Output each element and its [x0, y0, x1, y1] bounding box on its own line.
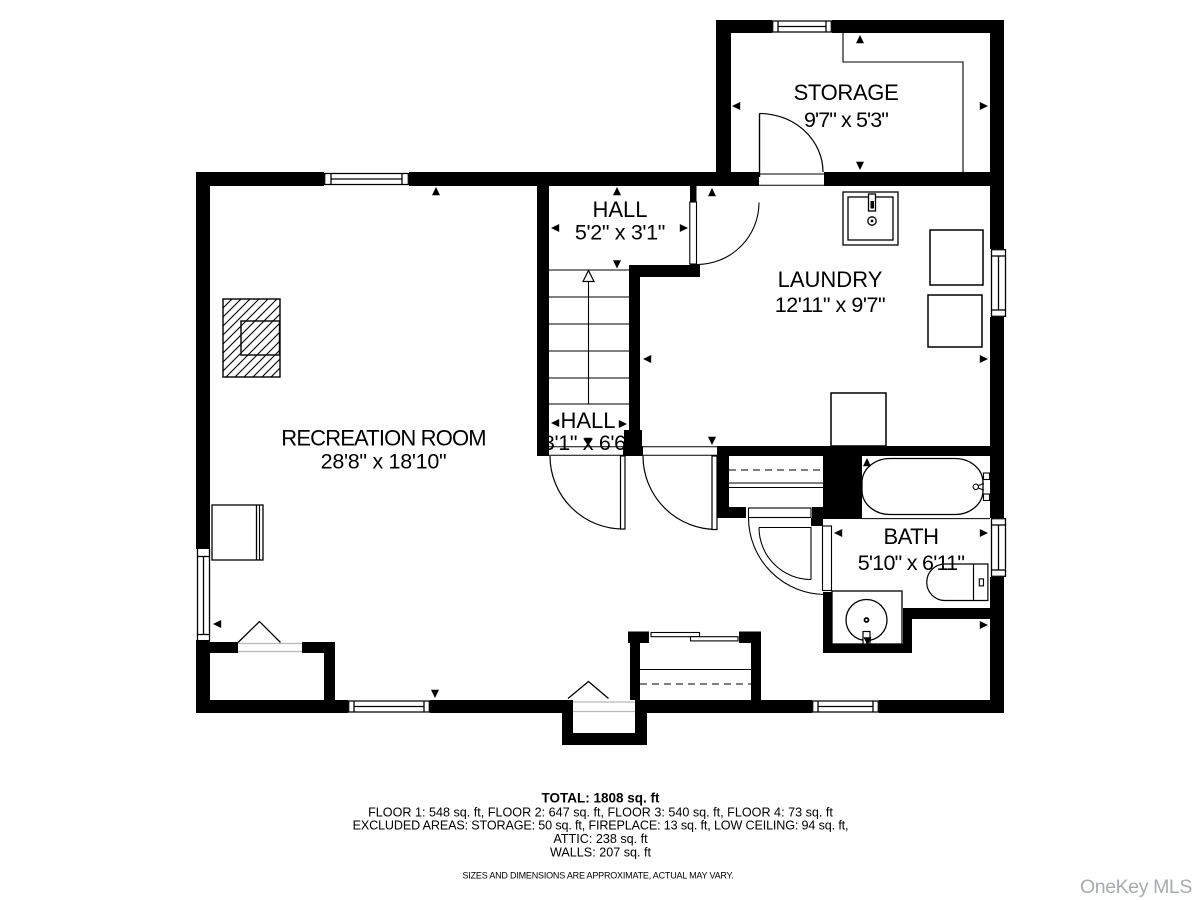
svg-text:WALLS: 207 sq. ft: WALLS: 207 sq. ft	[550, 845, 652, 859]
svg-text:EXCLUDED AREAS: STORAGE: 50 sq: EXCLUDED AREAS: STORAGE: 50 sq. ft, FIRE…	[353, 819, 849, 833]
svg-text:9'7" x 5'3": 9'7" x 5'3"	[804, 108, 888, 132]
svg-text:OneKey MLS: OneKey MLS	[1080, 876, 1192, 898]
svg-text:5'2" x 3'1": 5'2" x 3'1"	[575, 221, 665, 245]
svg-text:BATH: BATH	[883, 524, 938, 549]
svg-text:28'8" x 18'10": 28'8" x 18'10"	[321, 450, 447, 474]
svg-text:HALL: HALL	[560, 408, 615, 433]
svg-text:5'10" x 6'11": 5'10" x 6'11"	[858, 551, 965, 575]
svg-text:TOTAL: 1808 sq. ft: TOTAL: 1808 sq. ft	[541, 791, 660, 806]
svg-text:LAUNDRY: LAUNDRY	[778, 267, 883, 292]
svg-text:3'1" x 6'6": 3'1" x 6'6"	[543, 431, 633, 455]
svg-text:FLOOR 1: 548 sq. ft, FLOOR 2:: FLOOR 1: 548 sq. ft, FLOOR 2: 647 sq. ft…	[368, 805, 833, 819]
svg-text:ATTIC: 238 sq. ft: ATTIC: 238 sq. ft	[553, 832, 648, 846]
svg-text:SIZES AND DIMENSIONS ARE APPRO: SIZES AND DIMENSIONS ARE APPROXIMATE, AC…	[463, 870, 734, 880]
svg-text:RECREATION ROOM: RECREATION ROOM	[281, 426, 485, 451]
svg-text:HALL: HALL	[592, 197, 647, 222]
svg-text:STORAGE: STORAGE	[794, 80, 899, 105]
svg-text:12'11" x 9'7": 12'11" x 9'7"	[775, 293, 885, 317]
